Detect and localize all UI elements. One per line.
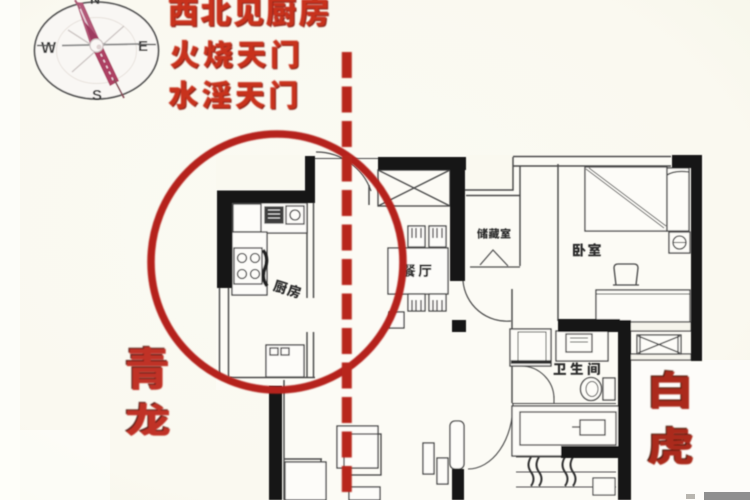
svg-text:S: S (92, 87, 102, 104)
svg-text:W: W (41, 40, 57, 57)
svg-text:E: E (138, 38, 148, 55)
svg-text:N: N (90, 0, 100, 7)
